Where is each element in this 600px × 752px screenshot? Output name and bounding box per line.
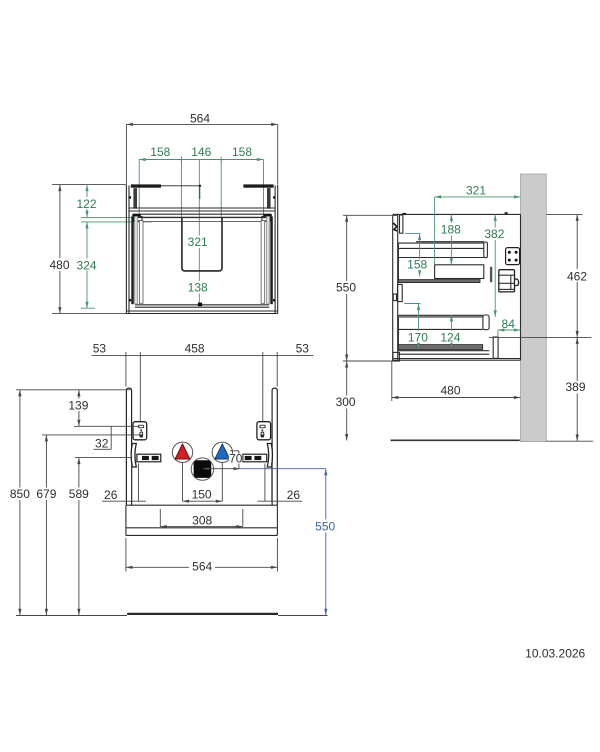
svg-text:480: 480: [49, 258, 69, 272]
svg-text:170: 170: [408, 331, 428, 345]
svg-text:589: 589: [69, 487, 89, 501]
svg-text:188: 188: [441, 223, 461, 237]
svg-text:70: 70: [229, 451, 243, 465]
svg-text:324: 324: [76, 259, 96, 273]
svg-text:321: 321: [466, 184, 486, 198]
svg-text:32: 32: [95, 436, 109, 450]
svg-text:308: 308: [192, 514, 212, 528]
svg-text:158: 158: [232, 145, 252, 159]
svg-text:124: 124: [440, 331, 460, 345]
svg-text:462: 462: [567, 270, 587, 284]
svg-text:550: 550: [336, 281, 356, 295]
svg-text:10.03.2026: 10.03.2026: [525, 646, 585, 660]
svg-text:382: 382: [484, 227, 504, 241]
svg-text:300: 300: [336, 395, 356, 409]
svg-text:564: 564: [190, 112, 210, 126]
svg-text:138: 138: [188, 281, 208, 295]
svg-text:53: 53: [93, 341, 107, 355]
svg-text:321: 321: [188, 235, 208, 249]
svg-text:84: 84: [502, 317, 516, 331]
svg-text:26: 26: [104, 488, 118, 502]
svg-text:550: 550: [315, 520, 335, 534]
svg-text:158: 158: [150, 145, 170, 159]
svg-text:26: 26: [287, 488, 301, 502]
svg-text:158: 158: [407, 257, 427, 271]
svg-text:389: 389: [565, 380, 585, 394]
svg-text:458: 458: [185, 341, 205, 355]
svg-text:53: 53: [296, 341, 310, 355]
svg-text:150: 150: [192, 488, 212, 502]
svg-text:679: 679: [36, 487, 56, 501]
svg-text:139: 139: [68, 399, 88, 413]
svg-text:850: 850: [10, 487, 30, 501]
svg-text:480: 480: [440, 384, 460, 398]
svg-text:564: 564: [192, 559, 212, 573]
svg-text:122: 122: [76, 197, 96, 211]
svg-text:146: 146: [191, 145, 211, 159]
